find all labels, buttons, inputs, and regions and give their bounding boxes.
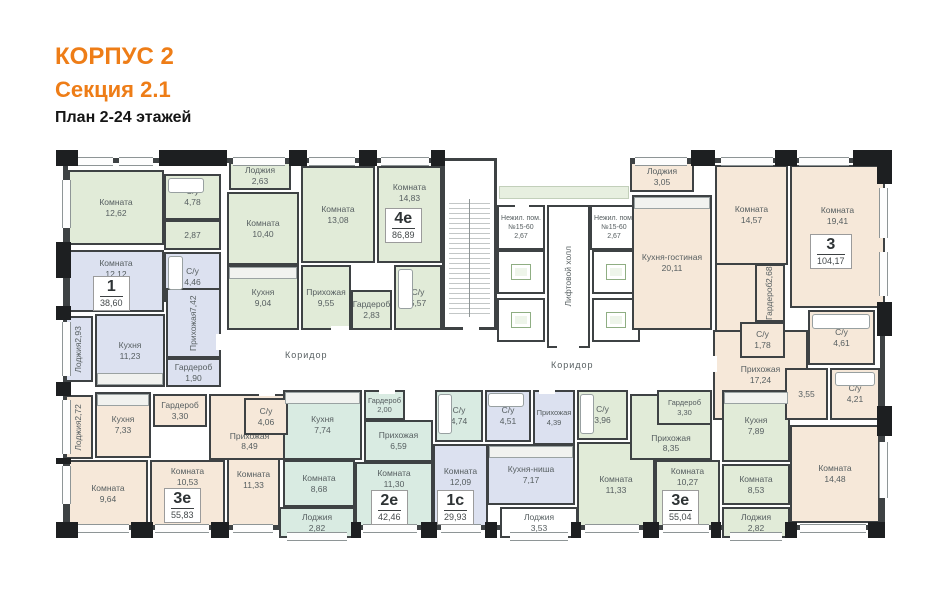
room[interactable]: Гардероб2,68	[755, 264, 785, 322]
nonresidential-room[interactable]: Нежил. пом.№15-602,67	[590, 205, 638, 250]
room[interactable]: 2,87	[164, 220, 221, 250]
facade-pier	[711, 522, 721, 538]
window	[879, 442, 888, 498]
facade-pier	[643, 522, 659, 538]
window	[155, 524, 209, 533]
corridor-label: Коридор	[285, 350, 328, 360]
window	[77, 524, 129, 533]
facade-pier	[571, 522, 581, 538]
lift-hall: Лифтовой холл	[547, 205, 590, 348]
kitchen-counter	[724, 392, 788, 404]
staircase	[442, 158, 497, 330]
room[interactable]: Гардероб3,30	[153, 394, 207, 427]
facade-pier	[485, 522, 497, 538]
room[interactable]: Лоджия3,05	[630, 162, 694, 192]
apartment-badge[interactable]: 1с29,93	[437, 490, 474, 525]
window	[663, 524, 709, 533]
facade-pier	[56, 382, 71, 396]
facade-pier	[159, 150, 227, 166]
floor-plan: Комната12,62 С/у4,78 2,87 Лоджия2,63 Ком…	[63, 158, 891, 558]
window	[62, 400, 71, 454]
facade-pier	[56, 150, 78, 166]
section-title: Секция 2.1	[55, 75, 191, 106]
elevator-icon	[606, 264, 626, 280]
door-opening	[557, 342, 579, 350]
door-opening	[463, 324, 479, 332]
elevator-icon	[606, 312, 626, 328]
facade-pier	[56, 306, 71, 320]
plan-title: План 2-24 этажей	[55, 106, 191, 130]
corridor-label: Коридор	[551, 360, 594, 370]
window	[635, 157, 687, 166]
door-opening	[709, 356, 717, 372]
room[interactable]: Лоджия2,63	[229, 162, 291, 190]
window	[119, 157, 153, 166]
facade-pier	[431, 150, 445, 166]
room[interactable]: С/у1,78	[740, 322, 785, 358]
window	[75, 157, 113, 166]
nonresidential-room[interactable]: Нежил. пом.№15-602,67	[497, 205, 545, 250]
window	[233, 157, 285, 166]
kitchen-counter	[489, 446, 573, 458]
facade-pier	[421, 522, 437, 538]
room[interactable]: Гардероб2,00	[364, 390, 405, 420]
bathtub-icon	[812, 314, 870, 329]
room[interactable]: Прихожая9,55	[301, 265, 351, 330]
room[interactable]: Комната14,57	[715, 165, 788, 265]
window	[721, 157, 773, 166]
room[interactable]: Комната14,48	[790, 425, 880, 523]
bathtub-icon	[168, 256, 183, 290]
room[interactable]: Гардероб2,83	[351, 290, 392, 330]
room[interactable]: Прихожая6,59	[364, 420, 433, 462]
elevator-icon	[511, 312, 531, 328]
window	[287, 532, 347, 541]
door-opening	[331, 326, 349, 334]
apartment-badge[interactable]: 3104,17	[810, 234, 852, 269]
facade-pier	[351, 522, 361, 538]
facade-pier	[775, 150, 797, 166]
bathtub-icon	[488, 393, 524, 407]
facade-pier	[56, 242, 71, 278]
bathtub-icon	[438, 394, 452, 434]
bathtub-icon	[835, 372, 875, 386]
kitchen-counter	[285, 392, 360, 404]
window	[363, 524, 417, 533]
bathtub-icon	[168, 178, 204, 193]
facade-pier	[877, 302, 892, 336]
room[interactable]: Комната10,40	[227, 192, 299, 265]
room[interactable]: Гардероб3,30	[657, 390, 712, 425]
building-title: КОРПУС 2	[55, 40, 191, 75]
kitchen-counter	[97, 373, 163, 385]
door-opening	[635, 386, 651, 394]
apartment-badge[interactable]: 3е55,04	[662, 490, 699, 525]
window	[879, 252, 888, 296]
facade-pier	[289, 150, 307, 166]
room[interactable]: Комната9,64	[68, 460, 148, 527]
window	[381, 157, 429, 166]
facade-pier	[56, 522, 78, 538]
kitchen-counter	[229, 267, 297, 279]
elevator-shaft	[497, 298, 545, 342]
apartment-badge[interactable]: 2е42,46	[371, 490, 408, 525]
canopy	[499, 186, 629, 199]
window	[309, 157, 355, 166]
room[interactable]: Кухня-гостиная20,11	[632, 195, 712, 330]
facade-pier	[56, 458, 71, 464]
window	[62, 322, 71, 376]
window	[800, 524, 866, 533]
page-header: КОРПУС 2 Секция 2.1 План 2-24 этажей	[55, 40, 191, 130]
room[interactable]: Комната12,62	[68, 170, 164, 245]
window	[879, 188, 888, 238]
apartment-badge[interactable]: 3е55,83	[164, 488, 201, 523]
room[interactable]: Комната13,08	[301, 166, 375, 263]
facade-pier	[691, 150, 715, 166]
window	[441, 524, 481, 533]
room[interactable]: Прихожая7,42	[166, 288, 221, 358]
window	[62, 180, 71, 228]
room[interactable]: Прихожая4,39	[533, 390, 575, 445]
room[interactable]: Гардероб1,90	[166, 358, 221, 387]
window	[233, 524, 273, 533]
facade-pier	[877, 150, 892, 184]
room[interactable]: Комната8,53	[722, 464, 790, 505]
room[interactable]: Комната8,68	[283, 460, 355, 507]
room[interactable]: С/у4,06	[244, 398, 288, 435]
apartment-badge[interactable]: 4е86,89	[385, 208, 422, 243]
door-opening	[539, 386, 555, 394]
facade-pier	[785, 522, 797, 538]
elevator-shaft	[497, 250, 545, 294]
door-opening	[259, 388, 275, 396]
floor-plan-page: КОРПУС 2 Секция 2.1 План 2-24 этажей Ком…	[0, 0, 941, 600]
room[interactable]: 3,55	[785, 368, 828, 420]
kitchen-counter	[634, 197, 710, 209]
elevator-icon	[511, 264, 531, 280]
door-opening	[379, 386, 395, 394]
apartment-badge[interactable]: 138,60	[93, 276, 130, 311]
window	[799, 157, 849, 166]
window	[62, 466, 71, 504]
window	[510, 532, 568, 541]
facade-pier	[131, 522, 153, 538]
window	[585, 524, 639, 533]
facade-pier	[211, 522, 229, 538]
kitchen-counter	[97, 394, 149, 406]
door-opening	[216, 334, 224, 350]
bathtub-icon	[580, 394, 594, 434]
facade-pier	[359, 150, 377, 166]
facade-pier	[868, 522, 885, 538]
bathtub-icon	[398, 269, 413, 309]
window	[730, 532, 782, 541]
facade-pier	[877, 406, 892, 436]
door-opening	[515, 200, 529, 207]
